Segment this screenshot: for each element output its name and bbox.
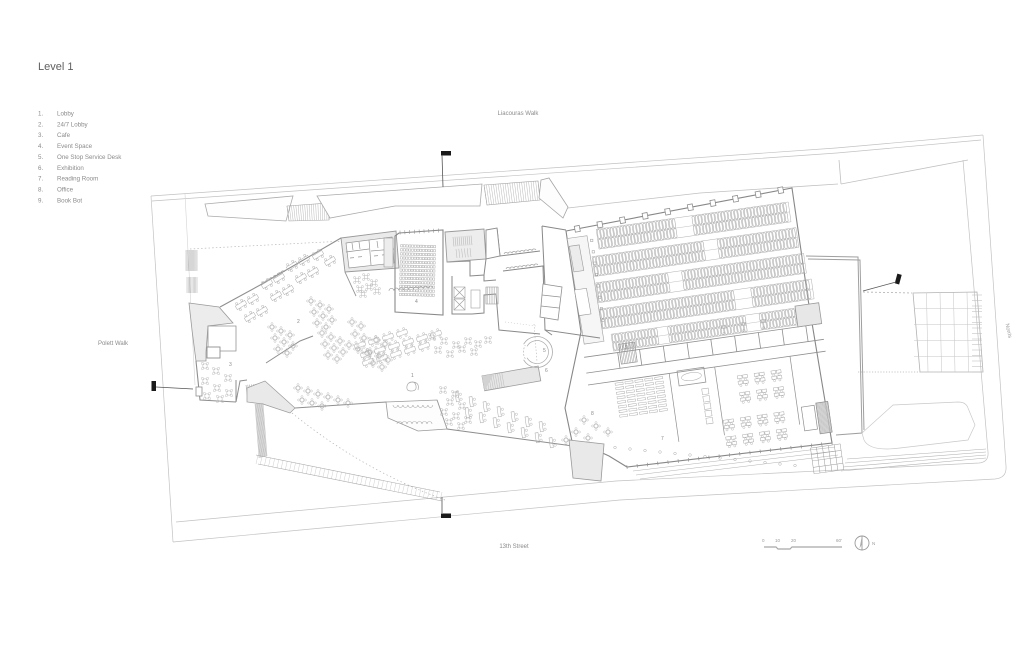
svg-text:2: 2: [297, 319, 300, 325]
svg-text:4: 4: [415, 299, 418, 305]
svg-text:Level 1: Level 1: [38, 61, 73, 73]
svg-text:4.: 4.: [38, 143, 43, 150]
svg-text:8: 8: [591, 411, 594, 417]
svg-text:24/7 Lobby: 24/7 Lobby: [57, 121, 89, 128]
svg-text:3.: 3.: [38, 132, 43, 139]
svg-text:Liacouras Walk: Liacouras Walk: [498, 111, 540, 117]
svg-text:13th Street: 13th Street: [499, 544, 529, 550]
svg-text:One Stop Service Desk: One Stop Service Desk: [57, 154, 122, 161]
svg-text:60': 60': [836, 538, 842, 543]
svg-text:Cafe: Cafe: [57, 132, 71, 139]
svg-text:5.: 5.: [38, 154, 43, 161]
svg-text:Polett Walk: Polett Walk: [98, 341, 129, 347]
svg-text:Lobby: Lobby: [57, 111, 75, 118]
svg-text:6: 6: [545, 368, 548, 374]
svg-text:3: 3: [229, 362, 232, 368]
svg-text:7: 7: [661, 436, 664, 442]
svg-text:9: 9: [625, 345, 628, 351]
svg-text:Office: Office: [57, 186, 74, 193]
svg-text:Exhibition: Exhibition: [57, 165, 84, 172]
svg-text:2.: 2.: [38, 121, 43, 128]
svg-text:Book Bot: Book Bot: [57, 197, 82, 204]
svg-text:Event Space: Event Space: [57, 143, 93, 150]
svg-text:10: 10: [775, 538, 781, 543]
svg-text:Reading Room: Reading Room: [57, 176, 98, 183]
svg-text:8.: 8.: [38, 186, 43, 193]
svg-text:1.: 1.: [38, 111, 43, 118]
svg-text:N: N: [872, 541, 875, 546]
svg-text:7.: 7.: [38, 176, 43, 183]
svg-text:20: 20: [791, 538, 797, 543]
svg-text:6.: 6.: [38, 165, 43, 172]
svg-text:9.: 9.: [38, 197, 43, 204]
svg-text:5: 5: [543, 348, 546, 354]
svg-text:1: 1: [411, 373, 414, 379]
